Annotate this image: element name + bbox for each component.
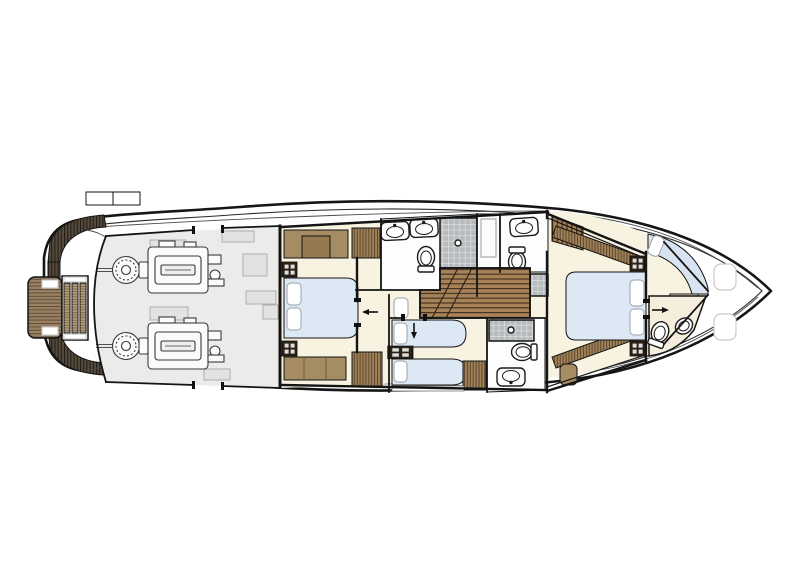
shower-drain: [455, 240, 461, 246]
vip-pillow: [287, 308, 301, 330]
vip-toilet: [418, 247, 435, 273]
day-head-sink: [509, 217, 538, 237]
vip-closet-top: [352, 228, 380, 258]
twin-wardrobe: [463, 361, 486, 390]
platform-hatch-top: [42, 280, 58, 288]
twin-pillow-lower: [394, 361, 407, 382]
shower-drain: [508, 327, 514, 333]
master-pillow: [630, 309, 644, 335]
steps-cap-bottom: [64, 334, 86, 339]
stern-step-column: [80, 283, 86, 333]
master-nightstand-top: [630, 256, 645, 271]
bow-locker-top: [714, 264, 736, 290]
yacht-deck-plan: [0, 0, 800, 566]
guest-sink: [497, 368, 525, 386]
master-nightstand-bottom: [630, 341, 645, 356]
vip-sink-1: [381, 221, 410, 240]
vip-nightstand-top: [282, 262, 297, 277]
vip-dresser-top: [302, 236, 330, 258]
bow-locker-bottom: [714, 314, 736, 340]
vip-bench: [284, 357, 346, 380]
stern-step-column: [72, 283, 78, 333]
twin-pillow-upper: [394, 323, 407, 344]
stern-step-column: [64, 283, 70, 333]
engine-room: [94, 225, 280, 390]
steps-cap-top: [64, 277, 86, 282]
vip-nightstand-bottom: [282, 341, 297, 356]
twin-nightstand: [388, 346, 413, 359]
platform-hatch-bottom: [42, 327, 58, 335]
vip-closet-bottom: [352, 352, 382, 386]
vip-pillow: [287, 283, 301, 305]
guest-toilet: [512, 344, 538, 361]
guest-shower-room: [487, 318, 545, 392]
vip-sink-2: [410, 218, 439, 237]
master-pillow: [630, 280, 644, 306]
